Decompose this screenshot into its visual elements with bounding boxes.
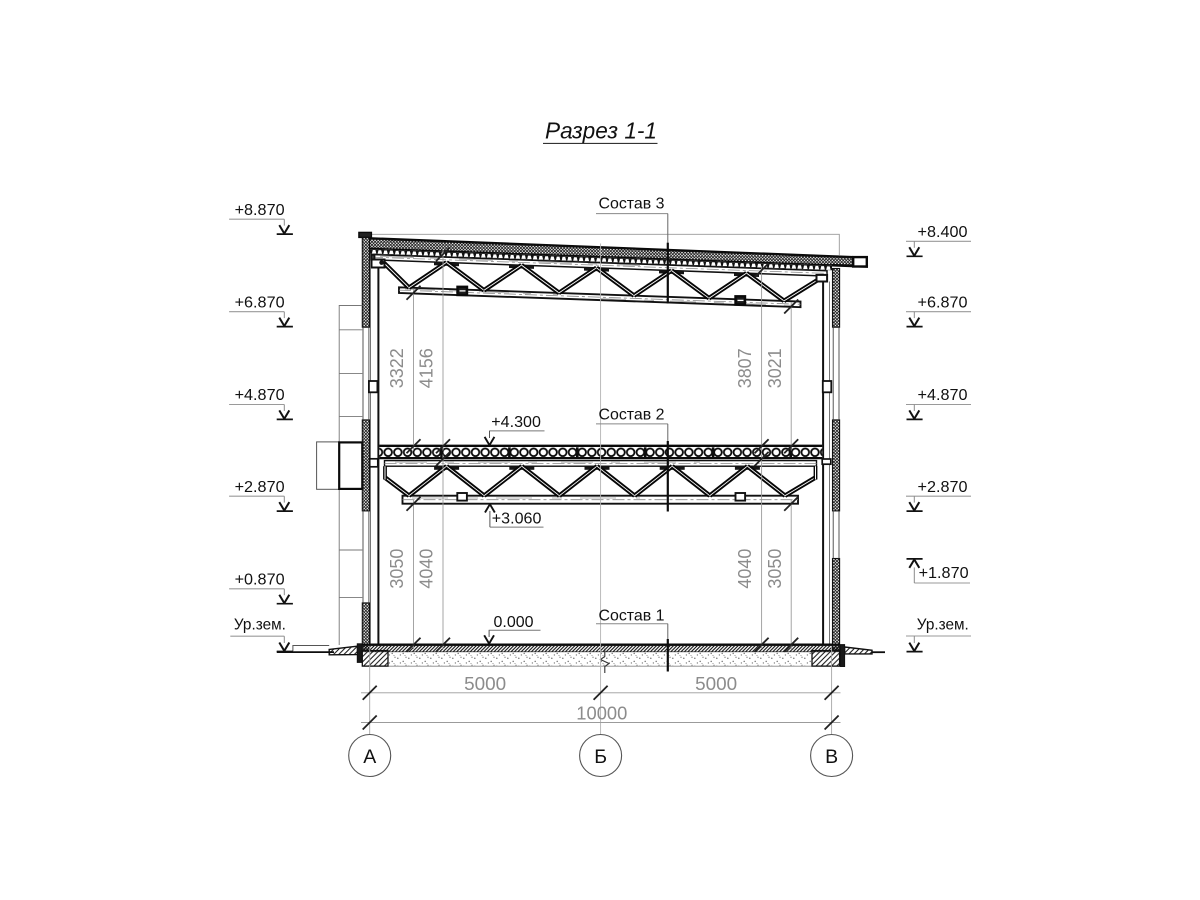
svg-text:А: А — [363, 746, 376, 768]
svg-text:+2.870: +2.870 — [918, 479, 968, 496]
svg-text:+6.870: +6.870 — [235, 294, 285, 311]
svg-text:10000: 10000 — [576, 702, 627, 723]
svg-text:3807: 3807 — [734, 348, 755, 388]
svg-text:5000: 5000 — [695, 673, 737, 694]
svg-text:3322: 3322 — [386, 348, 407, 388]
svg-text:+8.400: +8.400 — [918, 224, 968, 241]
svg-text:Б: Б — [594, 746, 607, 768]
svg-text:Состав 1: Состав 1 — [599, 608, 665, 625]
svg-text:+4.300: +4.300 — [491, 414, 541, 431]
svg-text:+8.870: +8.870 — [235, 202, 285, 219]
svg-text:+2.870: +2.870 — [235, 479, 285, 496]
svg-text:+4.870: +4.870 — [918, 387, 968, 404]
svg-text:3050: 3050 — [386, 549, 407, 589]
svg-text:4040: 4040 — [734, 549, 755, 589]
svg-text:В: В — [825, 746, 838, 768]
svg-text:3021: 3021 — [764, 348, 785, 388]
svg-text:Состав 3: Состав 3 — [599, 196, 665, 213]
svg-text:5000: 5000 — [464, 673, 506, 694]
svg-text:+4.870: +4.870 — [235, 387, 285, 404]
svg-text:Состав 2: Состав 2 — [599, 406, 665, 423]
svg-text:4040: 4040 — [416, 549, 437, 589]
svg-text:+6.870: +6.870 — [918, 294, 968, 311]
svg-text:0.000: 0.000 — [494, 614, 534, 631]
svg-text:Ур.зем.: Ур.зем. — [917, 617, 969, 634]
svg-text:3050: 3050 — [764, 549, 785, 589]
svg-text:+1.870: +1.870 — [919, 565, 969, 582]
svg-text:Разрез 1-1: Разрез 1-1 — [545, 118, 657, 144]
svg-text:Ур.зем.: Ур.зем. — [234, 617, 286, 634]
svg-text:+3.060: +3.060 — [492, 511, 542, 528]
svg-text:+0.870: +0.870 — [235, 572, 285, 589]
svg-text:4156: 4156 — [416, 348, 437, 388]
